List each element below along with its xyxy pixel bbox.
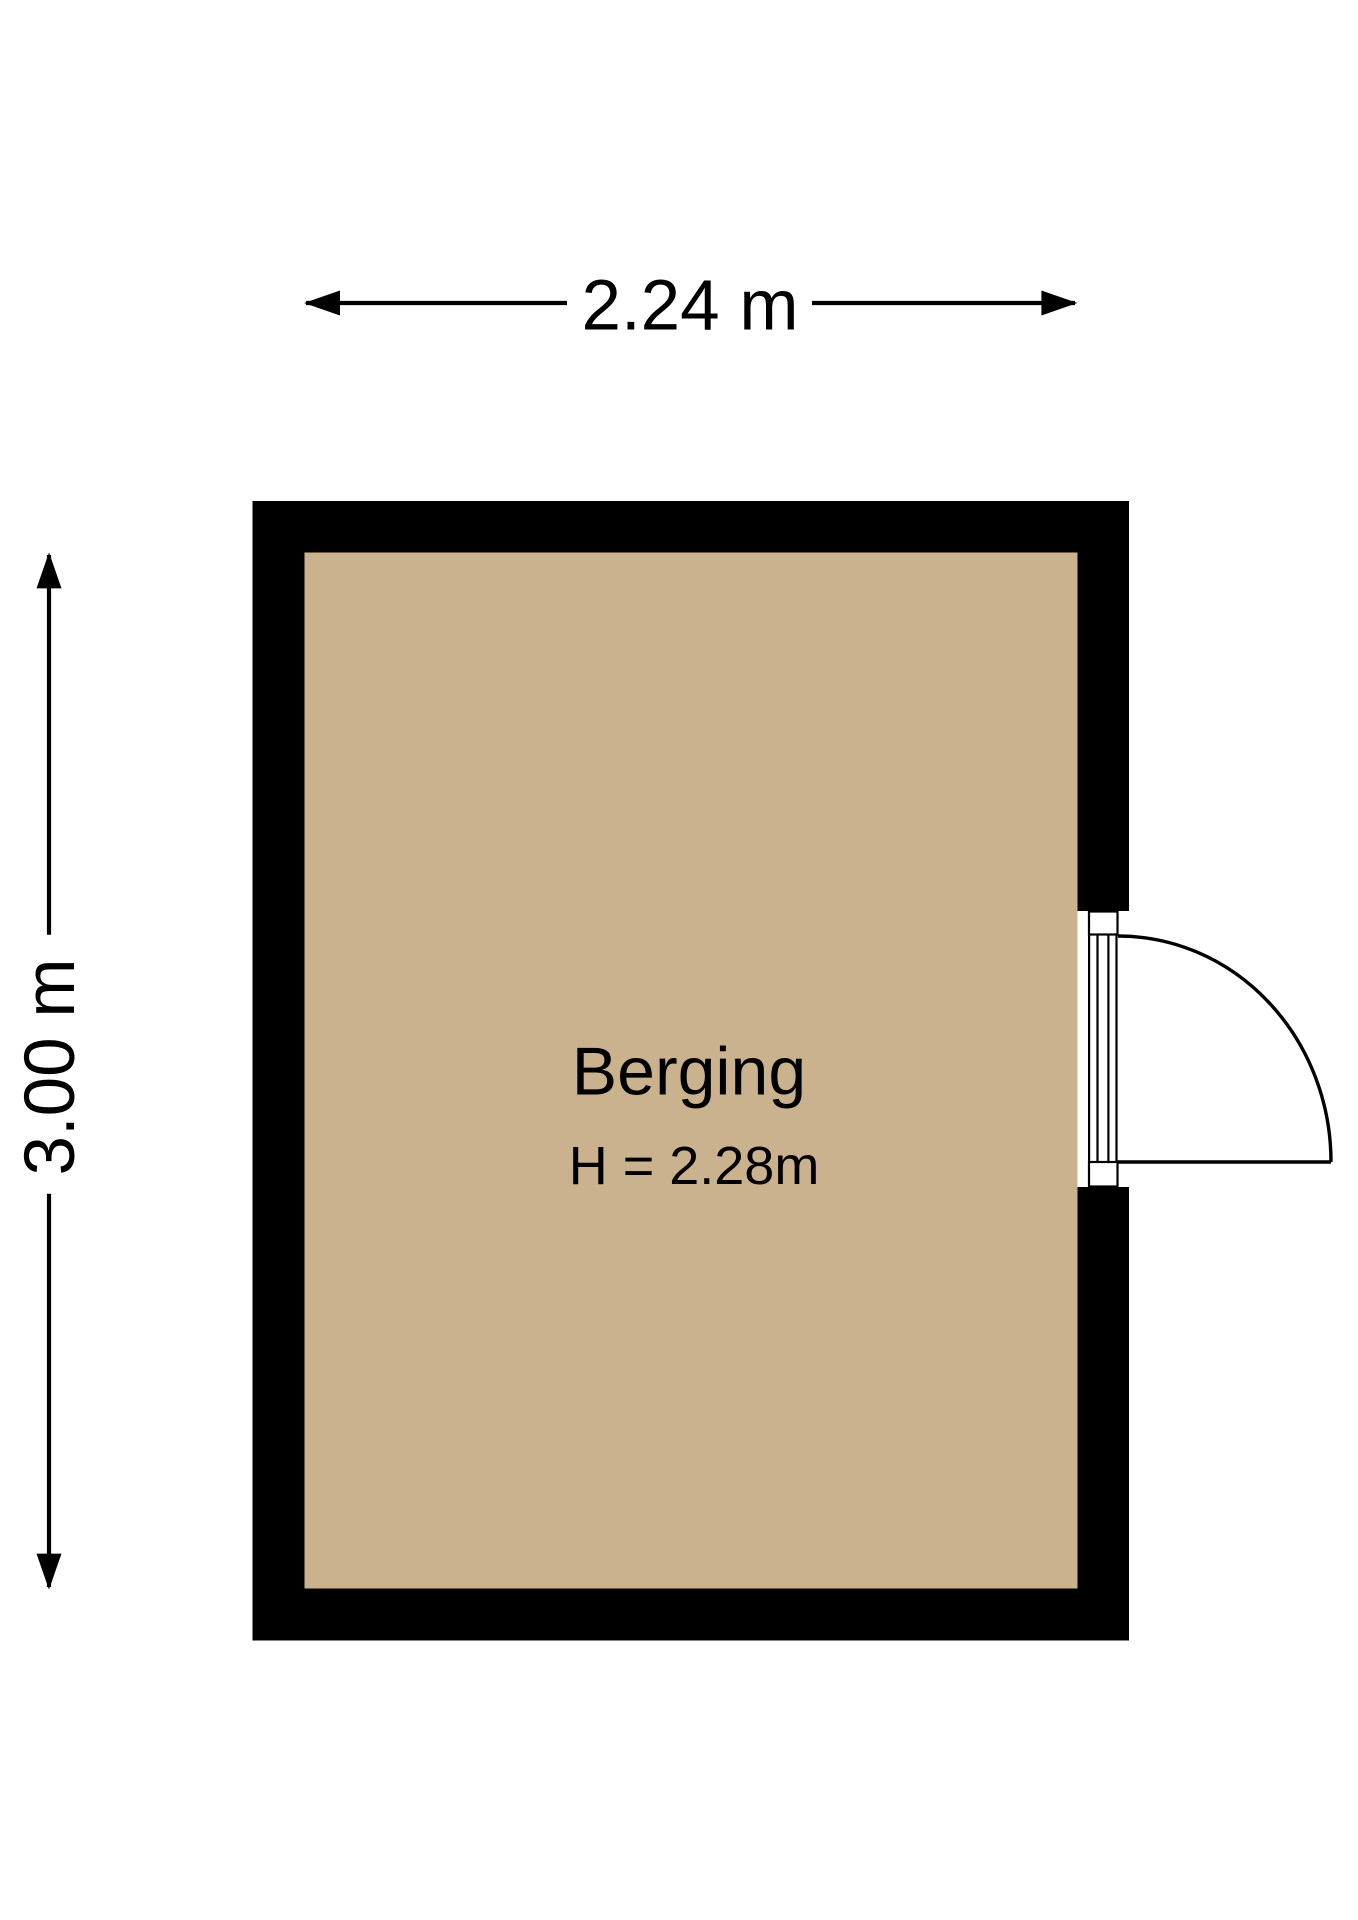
svg-text:H = 2.28m: H = 2.28m bbox=[569, 1136, 820, 1196]
svg-text:3.00 m: 3.00 m bbox=[11, 958, 90, 1175]
svg-text:2.24 m: 2.24 m bbox=[581, 267, 798, 346]
svg-text:Berging: Berging bbox=[572, 1033, 806, 1109]
